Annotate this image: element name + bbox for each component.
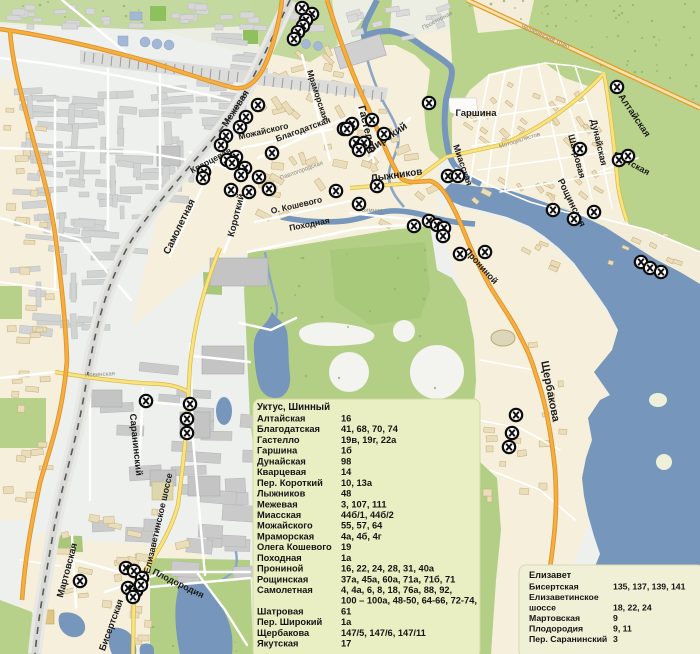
svg-text:3: 3 <box>613 634 618 644</box>
svg-text:17: 17 <box>341 639 351 649</box>
svg-text:98: 98 <box>341 456 351 466</box>
svg-text:Рощинская: Рощинская <box>257 574 308 584</box>
svg-text:100 – 100а, 48-50, 64-66, 72-7: 100 – 100а, 48-50, 64-66, 72-74, <box>341 596 477 606</box>
svg-text:Зимняя: Зимняя <box>361 208 382 215</box>
svg-text:Мраморская: Мраморская <box>257 531 314 541</box>
svg-text:41, 68, 70, 74: 41, 68, 70, 74 <box>341 424 399 434</box>
svg-text:9, 11: 9, 11 <box>613 624 632 634</box>
svg-text:Елизавет: Елизавет <box>529 570 572 580</box>
svg-text:1б: 1б <box>341 446 352 456</box>
svg-text:Бисертская: Бисертская <box>529 582 579 592</box>
svg-text:Якутская: Якутская <box>257 639 298 649</box>
svg-text:Самолетная: Самолетная <box>257 585 313 595</box>
svg-text:61: 61 <box>341 607 351 617</box>
svg-text:Елизаветинское: Елизаветинское <box>529 592 599 602</box>
svg-text:4, 4а, 6, 8, 18, 76а, 88, 92,: 4, 4а, 6, 8, 18, 76а, 88, 92, <box>341 585 452 595</box>
svg-text:Олега Кошевого: Олега Кошевого <box>257 542 332 552</box>
svg-text:Гастелло: Гастелло <box>257 435 300 445</box>
svg-text:48: 48 <box>341 489 351 499</box>
svg-text:Межевая: Межевая <box>257 499 298 509</box>
svg-text:Можайского: Можайского <box>257 521 313 531</box>
svg-text:Пер. Короткий: Пер. Короткий <box>257 478 323 488</box>
svg-text:Плодородия: Плодородия <box>529 624 583 634</box>
svg-text:16: 16 <box>341 414 351 424</box>
svg-text:Гаршина: Гаршина <box>455 108 497 119</box>
svg-text:шоссе: шоссе <box>529 603 556 613</box>
svg-text:14: 14 <box>341 467 352 477</box>
svg-text:44б/1, 44б/2: 44б/1, 44б/2 <box>341 510 394 520</box>
svg-text:Мартовская: Мартовская <box>529 613 580 623</box>
svg-text:Щербакова: Щербакова <box>257 628 310 638</box>
svg-text:3, 107, 111: 3, 107, 111 <box>341 499 387 509</box>
svg-text:Благодатская: Благодатская <box>257 424 320 434</box>
svg-text:37а, 45а, 60а, 71а, 71б, 71: 37а, 45а, 60а, 71а, 71б, 71 <box>341 574 455 584</box>
svg-text:55, 57, 64: 55, 57, 64 <box>341 521 383 531</box>
svg-text:Кварцевая: Кварцевая <box>257 467 306 477</box>
svg-text:18, 22, 24: 18, 22, 24 <box>613 603 652 613</box>
svg-text:Дунайская: Дунайская <box>257 456 306 466</box>
svg-text:10, 13а: 10, 13а <box>341 478 373 488</box>
svg-text:Уктус, Шинный: Уктус, Шинный <box>257 402 330 413</box>
svg-text:19в, 19г, 22а: 19в, 19г, 22а <box>341 435 397 445</box>
svg-text:Гаршина: Гаршина <box>257 446 298 456</box>
svg-text:1а: 1а <box>341 553 352 563</box>
svg-text:19: 19 <box>341 542 351 552</box>
svg-text:Пер. Саранинский: Пер. Саранинский <box>529 634 607 644</box>
svg-text:9: 9 <box>613 613 618 623</box>
svg-text:Походная: Походная <box>257 553 302 563</box>
svg-text:147/5, 147/6, 147/11: 147/5, 147/6, 147/11 <box>341 628 426 638</box>
svg-text:Шатровая: Шатровая <box>257 607 304 617</box>
svg-text:135, 137, 139, 141: 135, 137, 139, 141 <box>613 582 686 592</box>
svg-text:4а, 4б, 4г: 4а, 4б, 4г <box>341 531 382 541</box>
svg-text:Лыжников: Лыжников <box>257 489 306 499</box>
svg-text:Алтайская: Алтайская <box>257 414 305 424</box>
svg-text:16, 22, 24, 28, 31, 40а: 16, 22, 24, 28, 31, 40а <box>341 564 435 574</box>
svg-text:Прониной: Прониной <box>257 564 304 574</box>
svg-text:Пер. Широкий: Пер. Широкий <box>257 617 322 627</box>
svg-text:1а: 1а <box>341 617 352 627</box>
svg-text:Миасская: Миасская <box>257 510 301 520</box>
